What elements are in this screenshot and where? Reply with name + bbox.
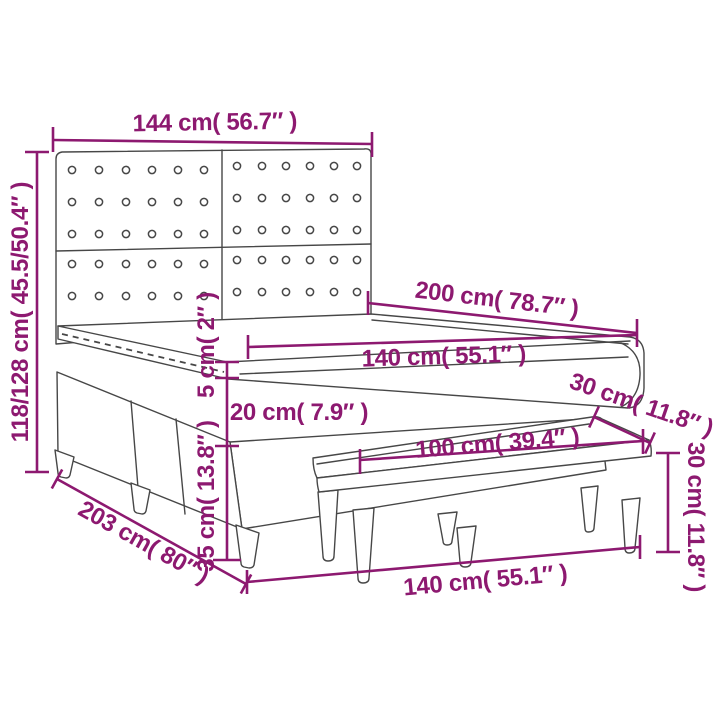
tufting-button bbox=[95, 292, 102, 299]
mattress bbox=[58, 314, 644, 408]
tufting-button bbox=[174, 292, 181, 299]
tufting-button bbox=[306, 226, 313, 233]
tufting-button bbox=[68, 166, 75, 173]
tufting-button bbox=[68, 292, 75, 299]
tufting-button bbox=[122, 198, 129, 205]
tufting-button bbox=[330, 194, 337, 201]
tufting-button bbox=[330, 226, 337, 233]
tufting-button bbox=[233, 194, 240, 201]
tufting-button bbox=[330, 256, 337, 263]
tufting-button bbox=[200, 260, 207, 267]
dimension-label: 144 cm( 56.7″ ) bbox=[132, 108, 297, 138]
dimension-label: 118/128 cm( 45.5/50.4″ ) bbox=[7, 182, 34, 443]
dimension-bench-height: 30 cm( 11.8″ ) bbox=[656, 442, 709, 592]
tufting-button bbox=[306, 162, 313, 169]
tufting-button bbox=[122, 292, 129, 299]
tufting-button bbox=[282, 194, 289, 201]
tufting-button bbox=[258, 162, 265, 169]
tufting-button bbox=[200, 230, 207, 237]
tufting-button bbox=[122, 230, 129, 237]
tufting-button bbox=[148, 230, 155, 237]
dimension-label: 30 cm( 11.8″ ) bbox=[682, 442, 709, 592]
dimension-label-topper: 5 cm( 2″ ) bbox=[193, 292, 220, 398]
tufting-button bbox=[353, 226, 360, 233]
tufting-button bbox=[282, 256, 289, 263]
bed-dimension-diagram: 144 cm( 56.7″ ) 118/128 cm( 45.5/50.4″ )… bbox=[0, 0, 720, 720]
tufting-button bbox=[68, 260, 75, 267]
tufting-button bbox=[282, 288, 289, 295]
bench-leg-front-right bbox=[622, 498, 640, 553]
tufting-button bbox=[174, 198, 181, 205]
tufting-button bbox=[95, 260, 102, 267]
dimension-floor-width: 140 cm( 55.1″ ) bbox=[247, 535, 640, 601]
dimension-headboard-height: 118/128 cm( 45.5/50.4″ ) bbox=[7, 152, 49, 472]
dimension-label-mattress-height: 20 cm( 7.9″ ) bbox=[230, 399, 368, 426]
bed-leg-corner bbox=[236, 525, 259, 568]
tufting-button bbox=[282, 162, 289, 169]
tufting-button bbox=[330, 288, 337, 295]
tufting-button bbox=[233, 288, 240, 295]
tufting-button bbox=[200, 198, 207, 205]
tufting-button bbox=[258, 288, 265, 295]
tufting-button bbox=[233, 226, 240, 233]
dimension-label-base-height: 35 cm( 13.8″ ) bbox=[193, 420, 220, 571]
tufting-button bbox=[306, 194, 313, 201]
tufting-button bbox=[353, 256, 360, 263]
dimension-label: 200 cm( 78.7″ ) bbox=[414, 277, 580, 323]
dimension-label: 140 cm( 55.1″ ) bbox=[361, 340, 526, 372]
tufting-button bbox=[122, 260, 129, 267]
tufting-button bbox=[258, 226, 265, 233]
tufting-button bbox=[353, 288, 360, 295]
tufting-button bbox=[174, 166, 181, 173]
tufting-button bbox=[148, 166, 155, 173]
tufting-button bbox=[174, 260, 181, 267]
tufting-button bbox=[148, 198, 155, 205]
tufting-button bbox=[353, 194, 360, 201]
dimension-line bbox=[53, 140, 372, 144]
tufting-button bbox=[258, 194, 265, 201]
tufting-button bbox=[95, 230, 102, 237]
tufting-button bbox=[95, 166, 102, 173]
tufting-button bbox=[282, 226, 289, 233]
mattress-outline bbox=[58, 314, 644, 408]
tufting-button bbox=[122, 166, 129, 173]
diagram-canvas: 144 cm( 56.7″ ) 118/128 cm( 45.5/50.4″ )… bbox=[0, 0, 720, 720]
tufting-button bbox=[95, 198, 102, 205]
tufting-button bbox=[233, 256, 240, 263]
bench-leg-back-right bbox=[581, 486, 598, 532]
bench-leg-back-mid bbox=[438, 512, 457, 545]
tufting-button bbox=[68, 198, 75, 205]
tufting-button bbox=[174, 230, 181, 237]
tufting-button bbox=[258, 256, 265, 263]
tufting-button bbox=[353, 162, 360, 169]
tufting-button bbox=[306, 288, 313, 295]
tufting-button bbox=[306, 256, 313, 263]
tufting-button bbox=[148, 292, 155, 299]
tufting-button bbox=[68, 230, 75, 237]
tufting-button bbox=[233, 162, 240, 169]
tufting-button bbox=[200, 166, 207, 173]
bench-leg-back-left bbox=[318, 490, 338, 561]
tufting-button bbox=[330, 162, 337, 169]
tufting-button bbox=[148, 260, 155, 267]
